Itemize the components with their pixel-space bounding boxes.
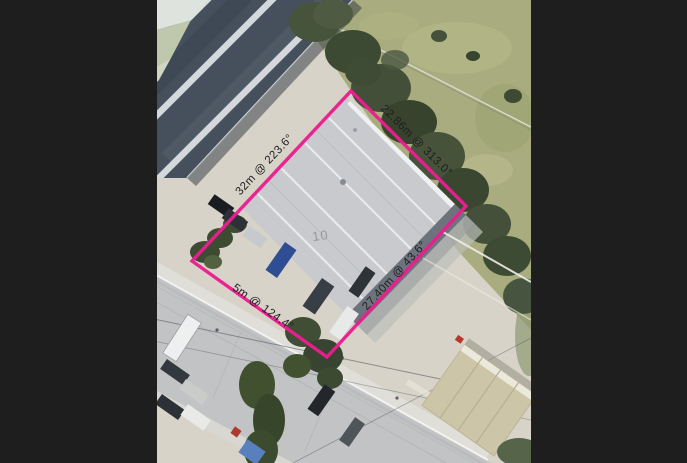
- letterbox-left: [0, 0, 157, 463]
- aerial-photo: 10 32m @ 223.6° 22.86m @ 313.0° 27.40m @…: [157, 0, 531, 463]
- letterbox-right: [531, 0, 687, 463]
- screenshot-stage: 10 32m @ 223.6° 22.86m @ 313.0° 27.40m @…: [0, 0, 687, 463]
- parcel-number-label: 10: [311, 227, 329, 244]
